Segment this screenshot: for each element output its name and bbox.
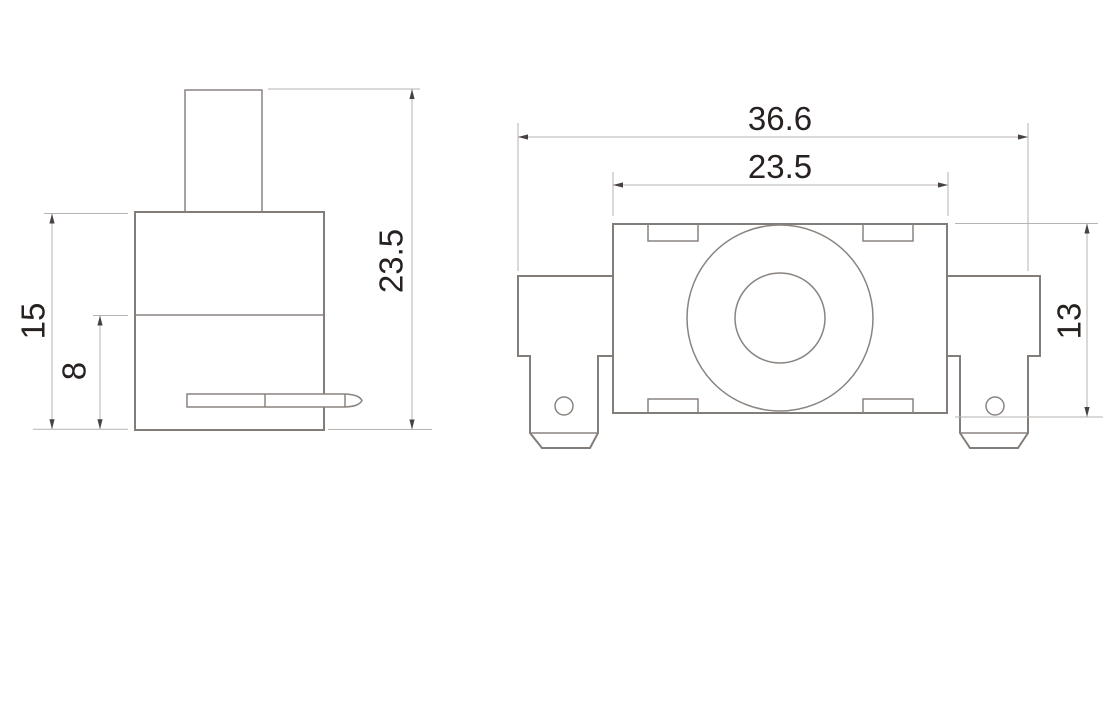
- front-notch-bottom-right: [863, 399, 913, 413]
- dim-23-5s-arrow-bottom: [409, 420, 414, 430]
- front-left-terminal-outline: [518, 276, 613, 448]
- front-notch-top-right: [863, 224, 913, 241]
- dim-23-5f-arrow-left: [613, 182, 623, 187]
- dim-13-label: 13: [1051, 303, 1088, 340]
- dim-15-arrow-top: [49, 214, 54, 224]
- front-body-outline: [613, 224, 947, 413]
- front-right-terminal-hole: [986, 397, 1004, 415]
- dim-36-6-arrow-left: [518, 134, 528, 139]
- dim-15-label: 15: [15, 303, 52, 340]
- front-inner-circle: [735, 273, 825, 363]
- dim-8-arrow-bottom: [97, 419, 102, 429]
- side-view: 15 8 23.5: [15, 89, 433, 430]
- dim-23-5s-arrow-top: [409, 89, 414, 99]
- front-notch-top-left: [648, 224, 698, 241]
- dim-36-6-arrow-right: [1018, 134, 1028, 139]
- dim-15-arrow-bottom: [49, 419, 54, 429]
- dim-13-arrow-bottom: [1084, 407, 1089, 417]
- dim-23-5f-label: 23.5: [748, 148, 812, 185]
- dim-36-6-label: 36.6: [748, 100, 812, 137]
- front-view: 36.6 23.5 13: [518, 100, 1103, 448]
- front-notch-bottom-left: [648, 399, 698, 413]
- dim-8-arrow-top: [97, 316, 102, 326]
- dim-23-5s-label: 23.5: [373, 229, 410, 293]
- dim-13-arrow-top: [1084, 224, 1089, 234]
- dimension-23-5-front: 23.5: [613, 148, 948, 216]
- engineering-drawing: 15 8 23.5: [0, 0, 1120, 712]
- dimension-15: 15: [15, 214, 129, 430]
- front-left-terminal-hole: [555, 397, 573, 415]
- dim-23-5f-arrow-right: [938, 182, 948, 187]
- side-plunger-outline: [185, 90, 262, 212]
- front-right-terminal-outline: [947, 276, 1040, 448]
- dim-8-label: 8: [56, 362, 93, 380]
- front-outer-circle: [687, 225, 873, 411]
- dimension-23-5-side: 23.5: [268, 89, 432, 430]
- drawing-svg: 15 8 23.5: [0, 0, 1120, 712]
- side-terminal-blade: [187, 394, 362, 407]
- dimension-8: 8: [56, 316, 129, 430]
